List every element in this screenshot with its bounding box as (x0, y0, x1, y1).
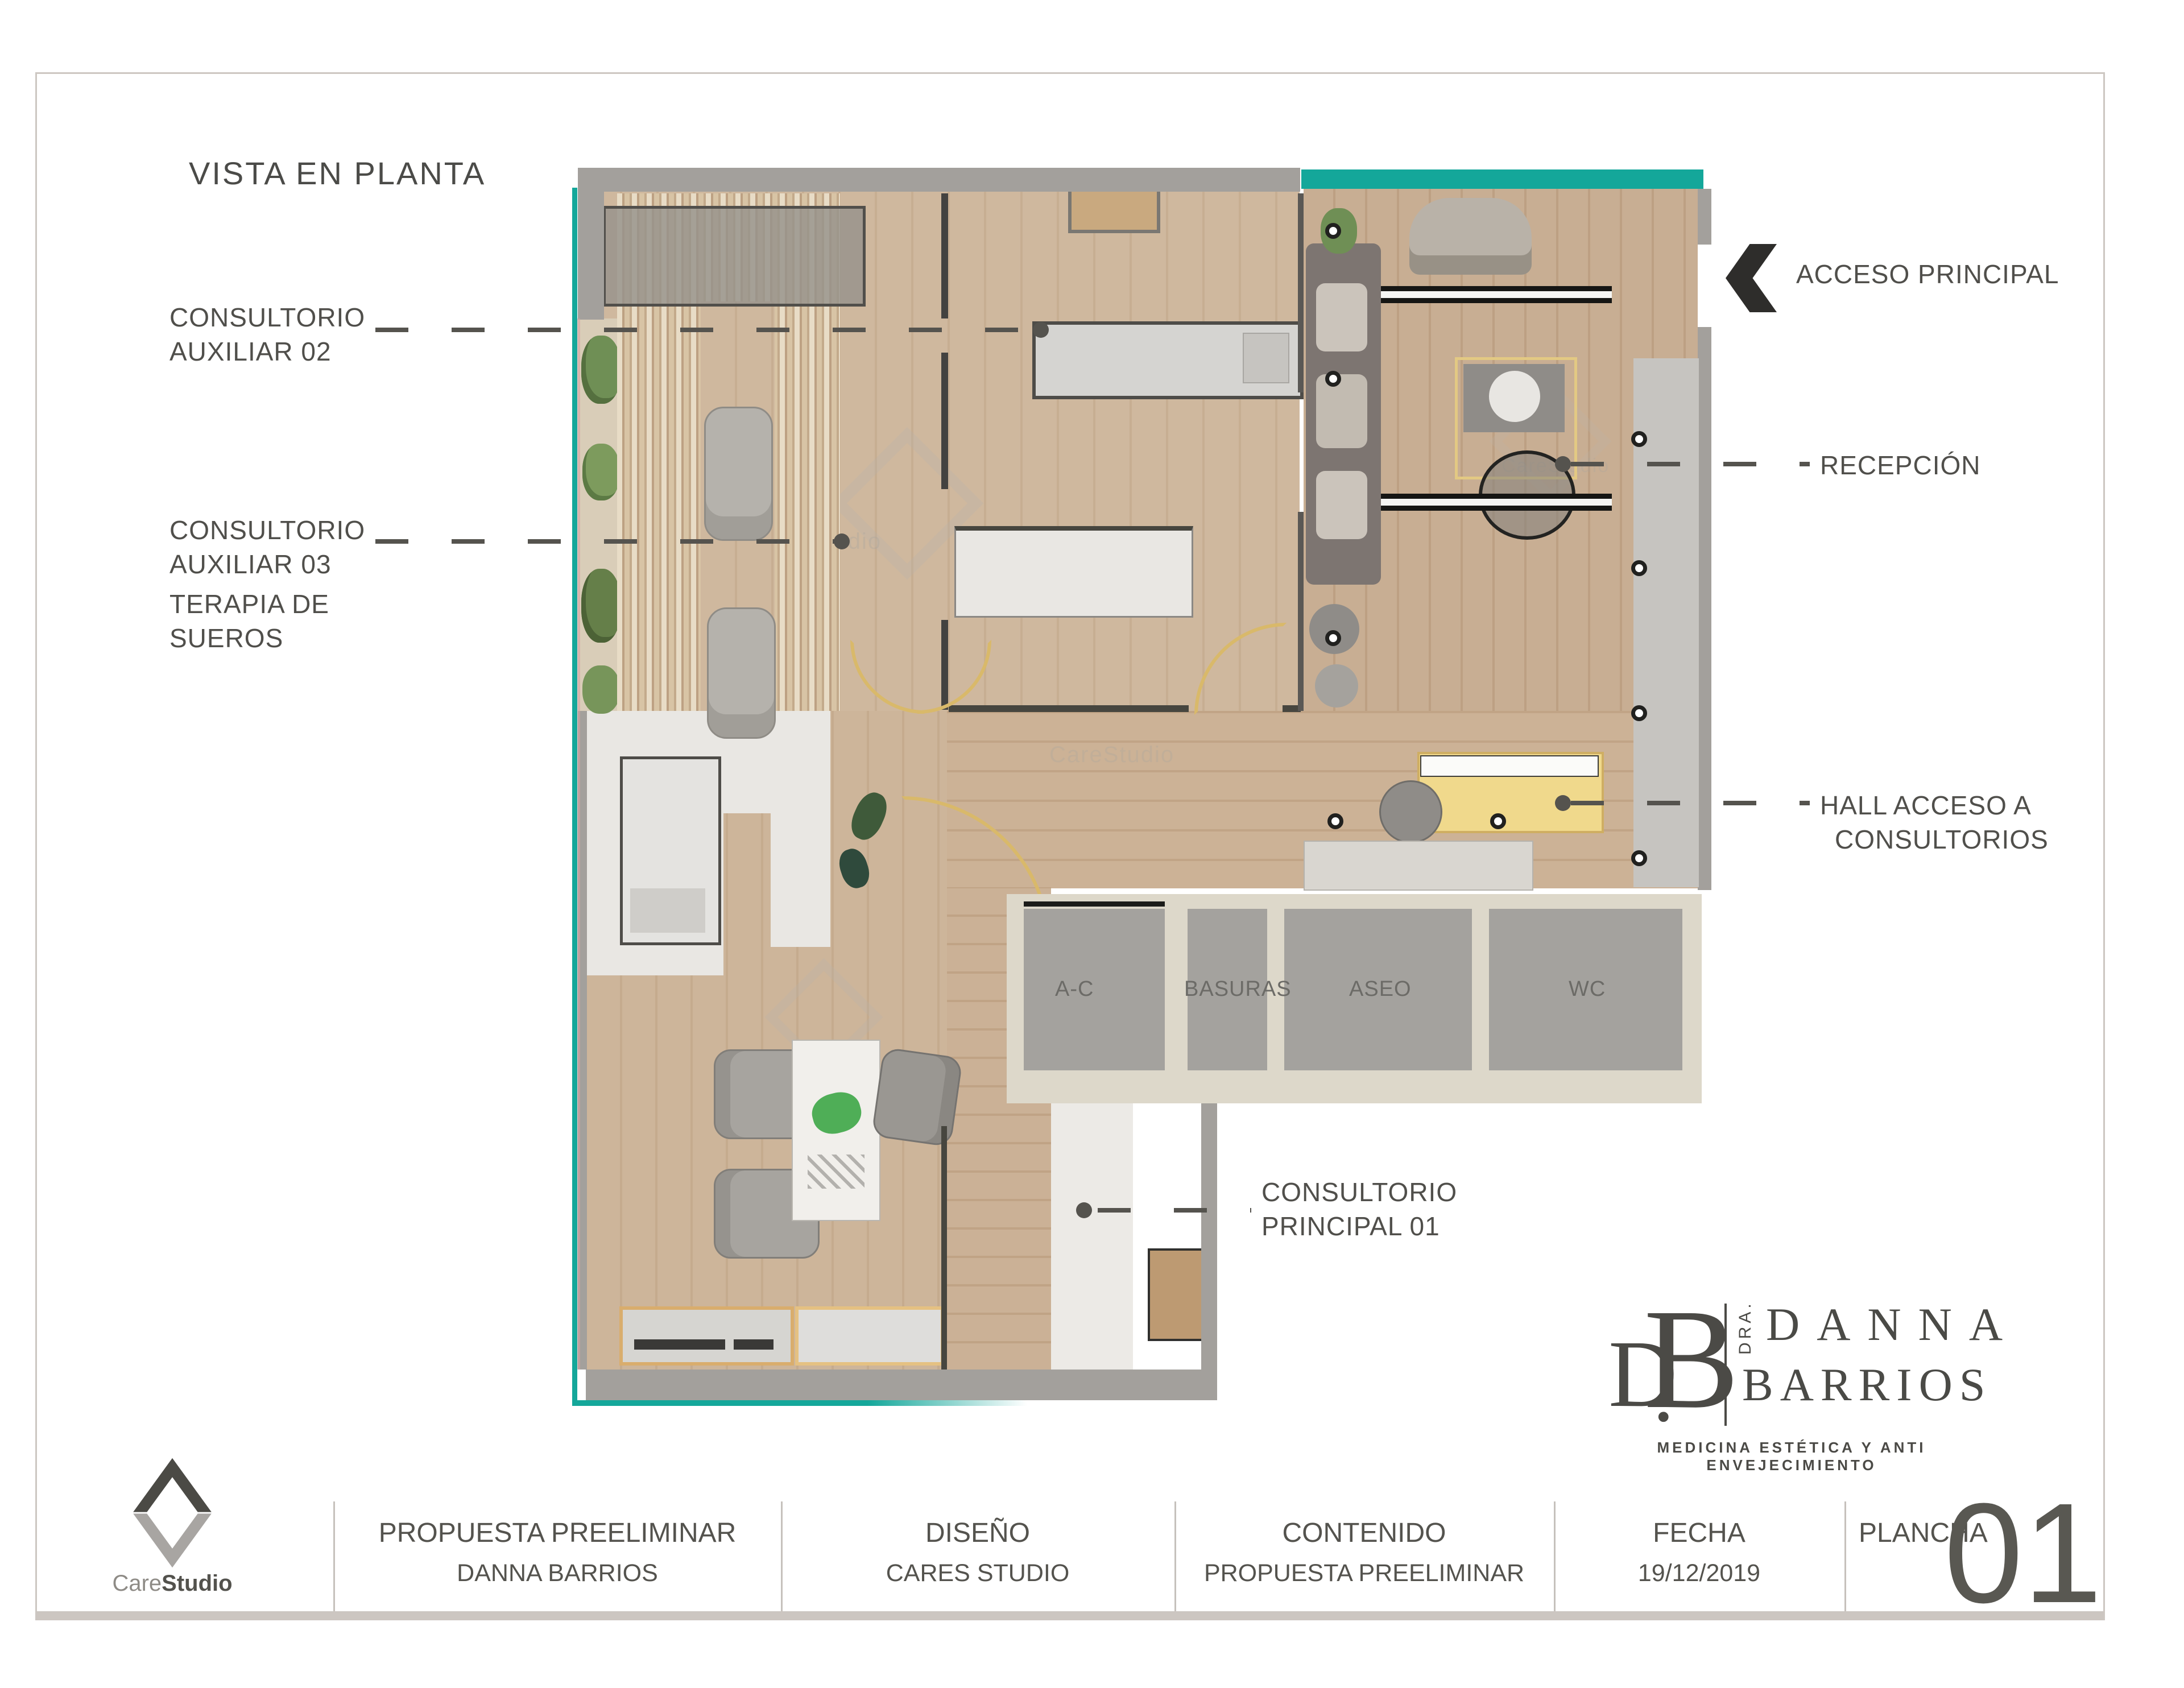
label-line: AUXILIAR 02 (169, 334, 365, 369)
carestudio-text-studio: Studio (162, 1571, 232, 1596)
titleblock-sheet-number: 01 (1944, 1495, 2102, 1611)
titleblock-bottom-bar (35, 1611, 2103, 1620)
door-leaf (1148, 1248, 1206, 1341)
spotlight (1631, 431, 1647, 447)
sofa (1306, 243, 1381, 585)
db-logo-dra: DRA. (1736, 1300, 1755, 1355)
leader-aux02 (375, 328, 1041, 332)
plant (581, 336, 621, 404)
spotlight (1325, 223, 1341, 239)
leader-dot (1555, 456, 1571, 472)
titleblock-cell-fecha-line1: FECHA (1565, 1517, 1833, 1549)
label-aux02: CONSULTORIO AUXILIAR 02 (169, 300, 365, 369)
vanity-basin (1489, 371, 1540, 422)
room-label-wc: WC (1569, 977, 1606, 1002)
label-acceso: ACCESO PRINCIPAL (1796, 257, 2059, 291)
facade-pink-left (577, 318, 580, 1370)
carestudio-watermark-text: CareStudio (1049, 742, 1174, 768)
exam-bed-pillow (1243, 333, 1289, 383)
wall-reception-left (1298, 193, 1304, 392)
spotlight (1631, 560, 1647, 576)
label-line: AUXILIAR 03 (169, 547, 365, 581)
wall-divider (941, 353, 948, 489)
leader-dot (834, 533, 850, 549)
wall-top (578, 168, 1300, 192)
page-title: VISTA EN PLANTA (189, 155, 486, 192)
label-principal: CONSULTORIO PRINCIPAL 01 (1261, 1175, 1457, 1243)
floor-vestibule (771, 813, 830, 947)
wall-reception-right (1698, 327, 1711, 890)
leader-hall (1571, 801, 1810, 805)
desk-items (808, 1155, 864, 1189)
entrance-glass (1301, 169, 1703, 189)
leader-dot (1033, 322, 1049, 338)
titleblock-divider (1554, 1501, 1556, 1611)
db-monogram: D . B (1608, 1286, 1722, 1429)
label-recepcion: RECEPCIÓN (1820, 448, 1980, 482)
wall-bottom (586, 1370, 1217, 1400)
credenza-detail (734, 1339, 773, 1350)
titleblock-divider (1174, 1501, 1176, 1611)
room-ac (1024, 909, 1165, 1070)
recliner-chair (704, 407, 773, 541)
sofa-cushion (1316, 471, 1367, 539)
carestudio-logo-text: CareStudio (96, 1571, 249, 1596)
side-table (1309, 604, 1359, 654)
utility-ac-topline (1024, 901, 1165, 907)
label-hall: HALL ACCESO A CONSULTORIOS (1820, 788, 2049, 857)
credenza-detail (634, 1339, 725, 1350)
therapy-bench (603, 206, 866, 307)
counter (954, 526, 1193, 618)
label-line: HALL ACCESO A (1820, 788, 2049, 822)
titleblock-divider (781, 1501, 783, 1611)
spotlight (1631, 705, 1647, 721)
pouf (1315, 664, 1358, 708)
label-line: CONSULTORIO (169, 513, 365, 547)
titleblock-cell-diseno-line1: DISEÑO (798, 1517, 1157, 1549)
titleblock-divider (1844, 1501, 1846, 1611)
spotlight (1325, 371, 1341, 387)
db-tagline: MEDICINA ESTÉTICA Y ANTI ENVEJECIMIENTO (1610, 1439, 1974, 1474)
armchair (1409, 198, 1532, 275)
titleblock-divider (333, 1501, 335, 1611)
wall-lower-right (1201, 1103, 1217, 1399)
wall-left-upper (578, 192, 604, 320)
label-line: CONSULTORIO (1261, 1175, 1457, 1209)
leader-principal (1098, 1208, 1251, 1213)
carestudio-logo-icon (130, 1456, 215, 1570)
titleblock-cell-contenido-line1: CONTENIDO (1186, 1517, 1542, 1549)
desk-chair (1379, 780, 1442, 843)
label-line: PRINCIPAL 01 (1261, 1209, 1457, 1243)
label-line: TERAPIA DE (169, 587, 365, 621)
titleblock-cell-propuesta-line2: DANNA BARRIOS (367, 1559, 747, 1587)
leader-dot (1555, 795, 1571, 811)
titleblock-cell-diseno-line2: CARES STUDIO (798, 1559, 1157, 1587)
sofa-cushion (1316, 374, 1367, 448)
facade-teal-bottom (572, 1400, 1027, 1406)
wall-room02-bottom (949, 705, 1189, 712)
carestudio-text-care: Care (112, 1571, 162, 1596)
recliner-chair (707, 607, 776, 739)
spotlight (1490, 813, 1506, 829)
wall-principal-right (941, 1126, 947, 1370)
titleblock-cell-propuesta-line1: PROPUESTA PREELIMINAR (367, 1517, 747, 1549)
titleblock-cell-fecha-line2: 19/12/2019 (1565, 1559, 1833, 1587)
acceso-arrow-icon (1726, 239, 1777, 317)
facade-teal-left (572, 188, 577, 1405)
waiting-bench (1304, 841, 1533, 891)
wall-divider (941, 193, 948, 318)
leader-recepcion (1571, 462, 1810, 466)
sofa-cushion (1316, 283, 1367, 351)
label-line: SUEROS (169, 621, 365, 655)
room-label-basuras: BASURAS (1184, 977, 1292, 1002)
leader-aux03 (375, 539, 842, 544)
db-name-line2: BARRIOS (1742, 1358, 1992, 1412)
room-label-aseo: ASEO (1349, 977, 1412, 1002)
spotlight (1327, 813, 1343, 829)
label-line: CONSULTORIOS (1835, 822, 2049, 857)
plant (582, 444, 620, 500)
credenza (795, 1306, 944, 1366)
db-logo-divider (1724, 1304, 1727, 1426)
label-aux03: CONSULTORIO AUXILIAR 03 TERAPIA DE SUERO… (169, 513, 365, 655)
db-name-line1: DANNA (1766, 1298, 2020, 1351)
wall-reception-right (1698, 189, 1711, 245)
spotlight (1325, 630, 1341, 646)
floor-passage (1051, 1103, 1133, 1370)
room-label-ac: A-C (1055, 977, 1094, 1002)
office-chair (871, 1047, 963, 1147)
plant (582, 665, 620, 714)
leader-dot (1076, 1202, 1092, 1218)
plant (581, 569, 621, 643)
credenza (619, 1306, 794, 1366)
wall-reception-left (1298, 512, 1304, 711)
spotlight (1631, 850, 1647, 866)
titleblock-cell-contenido-line2: PROPUESTA PREELIMINAR (1186, 1559, 1542, 1587)
label-line: CONSULTORIO (169, 300, 365, 334)
exam-bed-pillow (630, 888, 705, 933)
reception-desk-top (1420, 755, 1599, 777)
